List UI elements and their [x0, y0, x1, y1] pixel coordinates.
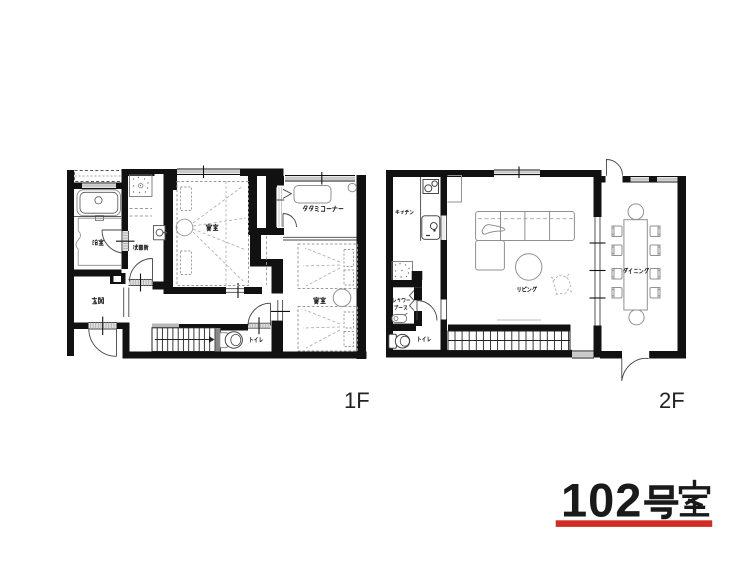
svg-text:102: 102	[561, 474, 642, 527]
svg-text:1F: 1F	[344, 388, 370, 413]
svg-text:2F: 2F	[659, 388, 685, 413]
